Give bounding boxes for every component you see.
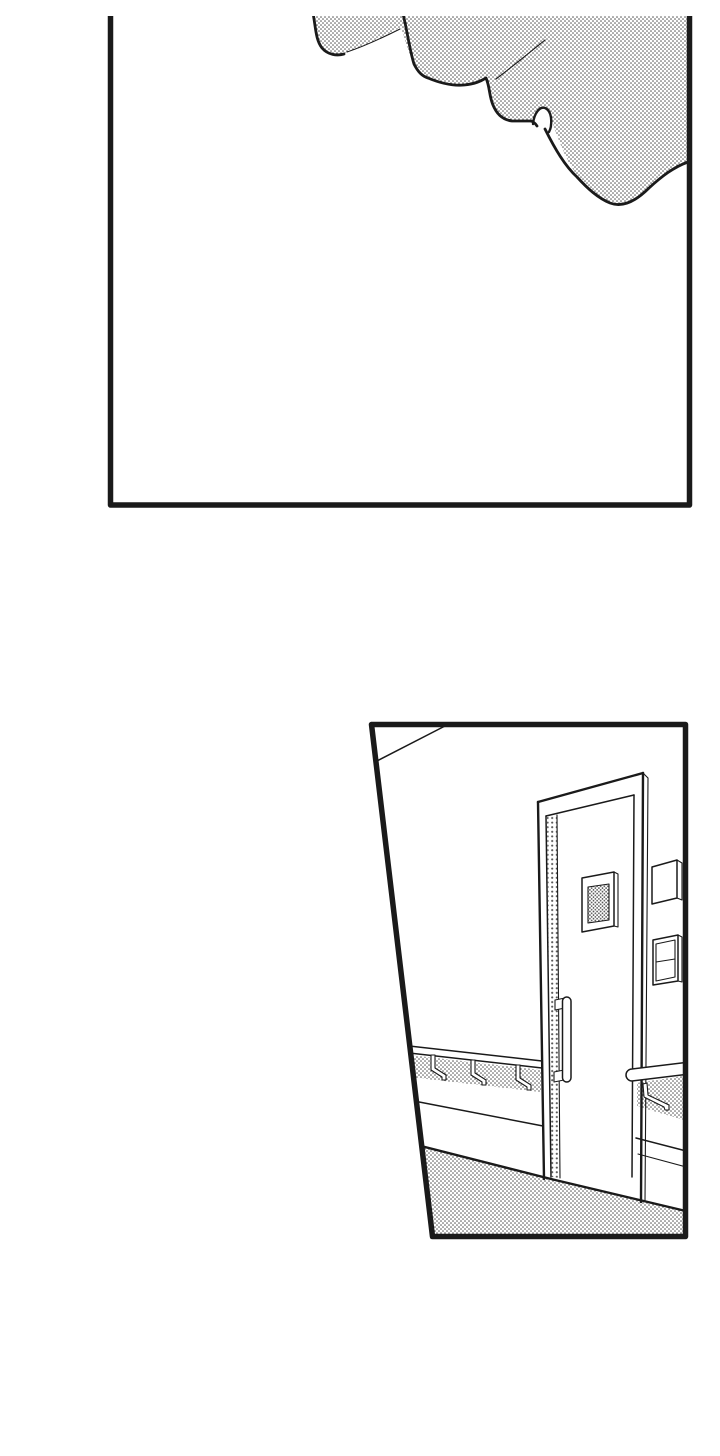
panel-bottom-background <box>372 725 686 1237</box>
manga-artwork <box>40 16 720 1456</box>
wall-sign <box>652 860 682 904</box>
door-window-glass <box>588 884 609 923</box>
switch-panel <box>653 935 682 985</box>
wall-sign-plate <box>652 860 677 904</box>
door-window <box>582 872 618 932</box>
panel-top <box>110 16 692 505</box>
manga-page <box>40 16 720 1456</box>
door-handle-bar <box>563 997 572 1082</box>
panel-bottom <box>372 725 691 1238</box>
